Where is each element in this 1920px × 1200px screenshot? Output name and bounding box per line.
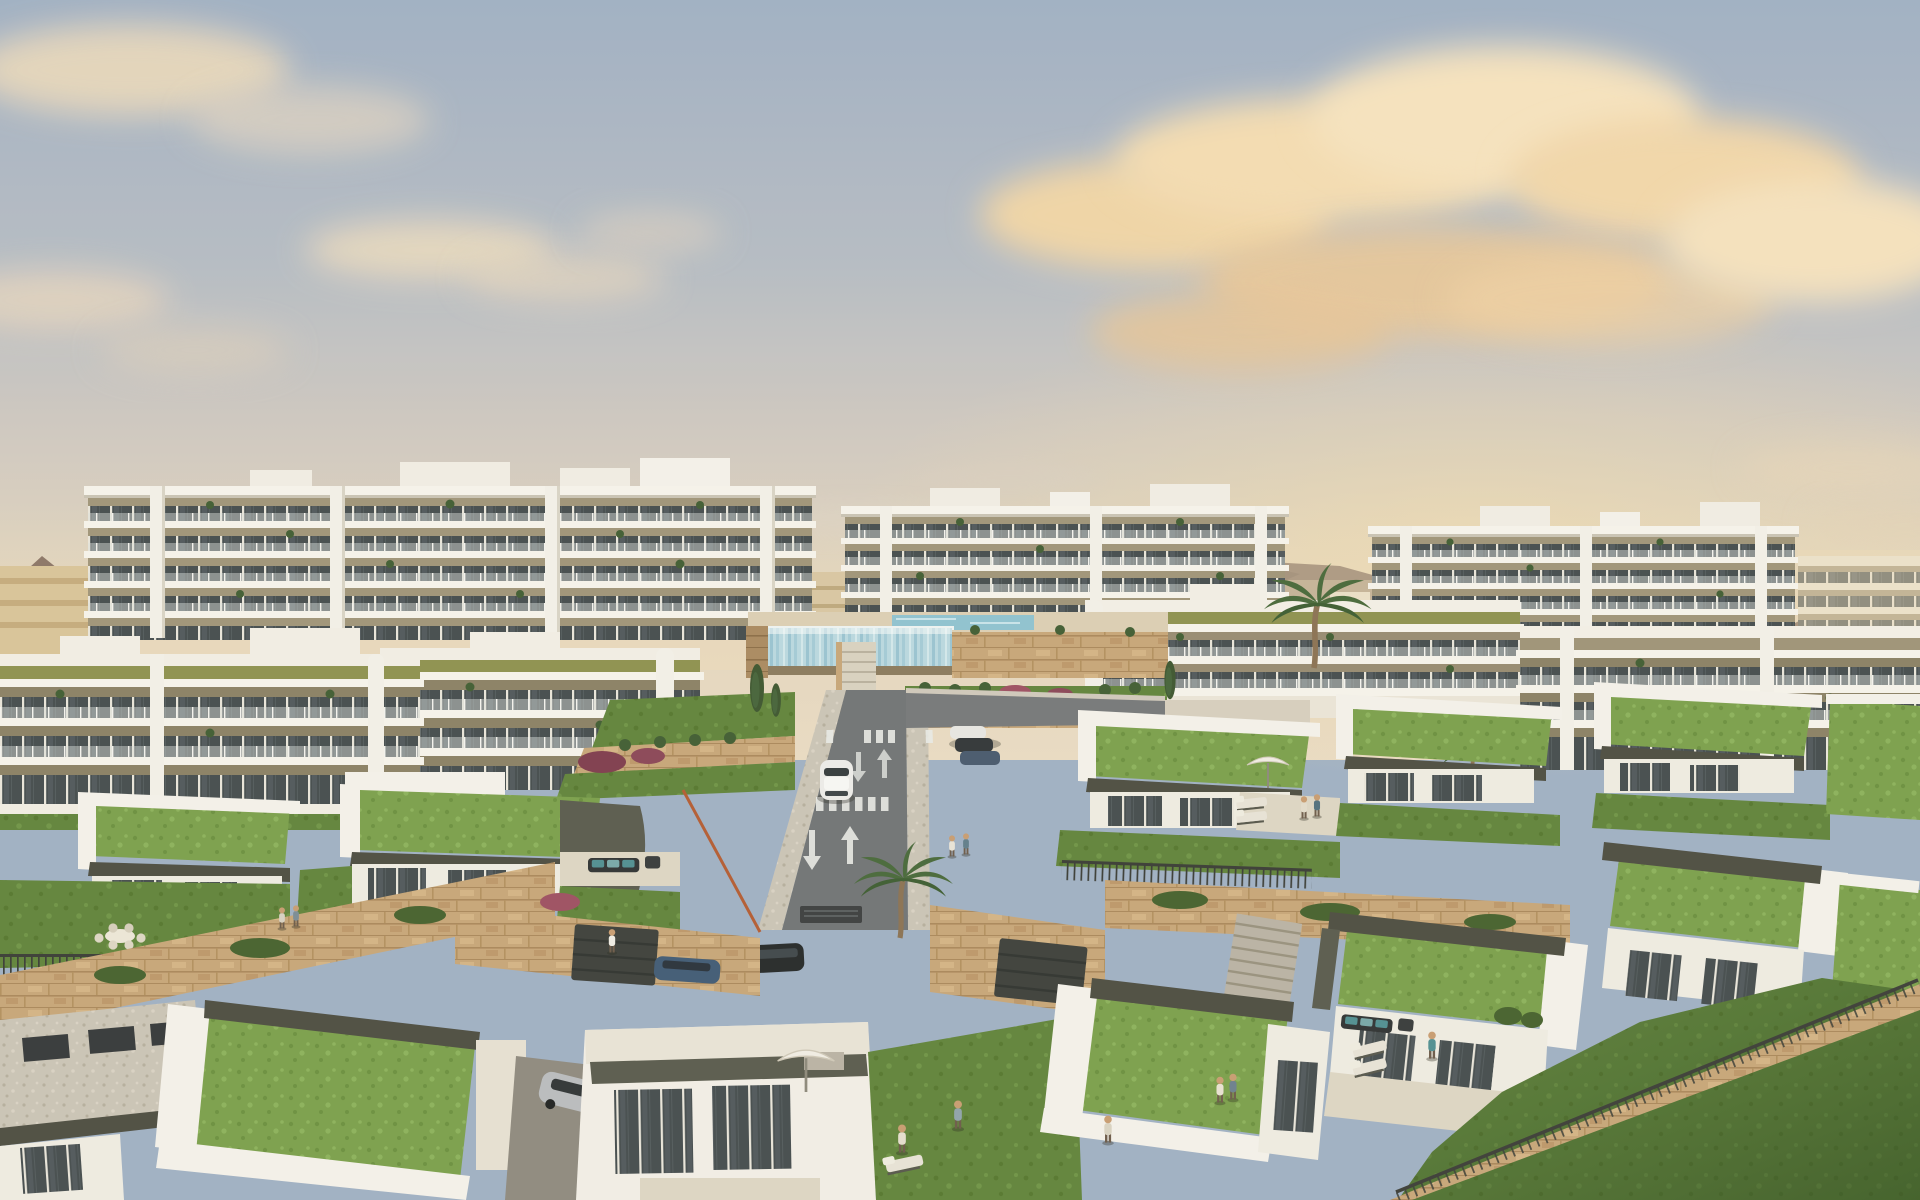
warm-grade <box>0 0 1920 1200</box>
architectural-render <box>0 0 1920 1200</box>
